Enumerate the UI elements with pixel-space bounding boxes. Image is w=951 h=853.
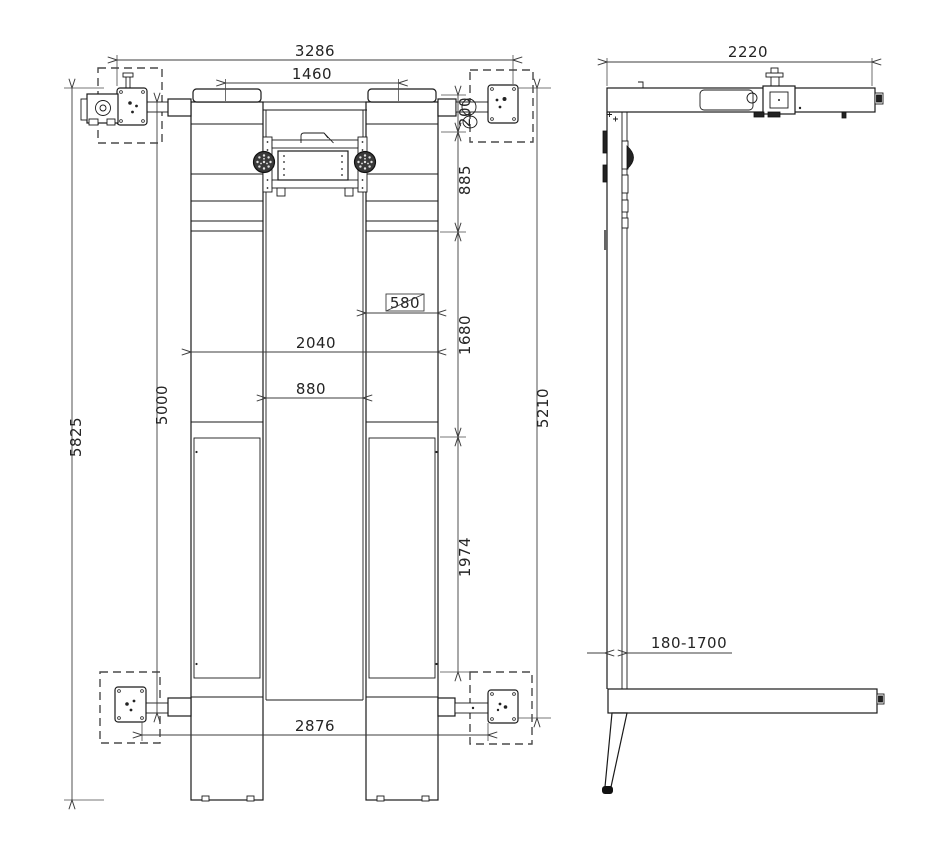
side-base-beam bbox=[602, 689, 884, 794]
dim-frame-length-label: 5210 bbox=[534, 388, 552, 428]
technical-drawing: 3286 1460 2040 880 580 2876 bbox=[0, 0, 951, 853]
runway-left bbox=[191, 89, 263, 801]
dim-platform-outer-width-label: 2040 bbox=[296, 334, 336, 352]
dim-drive-length-label: 5000 bbox=[153, 385, 171, 425]
post-roller bbox=[627, 146, 634, 169]
support-leg-foot bbox=[602, 786, 613, 794]
dim-runway-width-label: 580 bbox=[390, 294, 420, 312]
side-top-beam bbox=[607, 68, 883, 122]
post-latch-upper bbox=[603, 131, 607, 153]
dim-side-overall-width: 2220 bbox=[607, 43, 872, 86]
dim-arm-offset-label: 200 bbox=[456, 97, 474, 127]
wheel-stop-right bbox=[368, 89, 436, 102]
dim-frame-length: 5210 bbox=[518, 88, 552, 718]
lift-post bbox=[603, 112, 634, 689]
dim-mid-section: 1680 bbox=[440, 232, 474, 437]
wheel-stop-left bbox=[193, 89, 261, 102]
corner-post-bottom-left bbox=[100, 672, 191, 743]
motor-housing bbox=[700, 90, 753, 110]
dim-base-span-label: 2876 bbox=[295, 717, 335, 735]
support-leg bbox=[605, 713, 627, 787]
carriage-top-rail bbox=[272, 140, 358, 148]
post-latch-lower bbox=[603, 165, 607, 182]
beam-end-handle-bottom bbox=[877, 694, 884, 704]
runway-right bbox=[366, 89, 438, 801]
dim-platform-inner-gap: 880 bbox=[266, 380, 363, 398]
carriage-wheel-left bbox=[254, 152, 275, 173]
dim-rear-section-label: 1974 bbox=[456, 537, 474, 577]
dim-lift-height-range: 180-1700 bbox=[587, 634, 732, 653]
dim-lift-height-range-label: 180-1700 bbox=[651, 634, 727, 652]
carriage-bottom-rail bbox=[272, 180, 358, 188]
beam-end-handle-top bbox=[875, 93, 883, 104]
dim-overall-width-label: 3286 bbox=[295, 42, 335, 60]
corner-post-top-right bbox=[438, 70, 533, 142]
dim-rear-section: 1974 bbox=[440, 437, 474, 672]
drawing-canvas: 3286 1460 2040 880 580 2876 bbox=[0, 0, 951, 853]
corner-post-bottom-right bbox=[438, 672, 532, 744]
dim-overall-length: 5825 bbox=[64, 88, 104, 800]
dim-mid-section-label: 1680 bbox=[456, 315, 474, 355]
dim-drive-length: 5000 bbox=[153, 102, 171, 713]
dim-platform-inner-gap-label: 880 bbox=[296, 380, 326, 398]
dim-overall-length-label: 5825 bbox=[67, 417, 85, 457]
side-view: 2220 180-1700 bbox=[587, 43, 884, 794]
carriage-box bbox=[278, 151, 348, 180]
post-slide-mark bbox=[604, 230, 607, 250]
lift-carriage bbox=[254, 133, 376, 196]
dim-runway-center-spacing-label: 1460 bbox=[292, 65, 332, 83]
side-dimensions: 2220 180-1700 bbox=[587, 43, 872, 653]
carriage-wheel-right bbox=[355, 152, 376, 173]
corner-post-top-left bbox=[81, 68, 191, 143]
dim-front-section: 885 bbox=[440, 132, 474, 232]
dim-side-overall-width-label: 2220 bbox=[728, 43, 768, 61]
dim-front-section-label: 885 bbox=[456, 165, 474, 195]
